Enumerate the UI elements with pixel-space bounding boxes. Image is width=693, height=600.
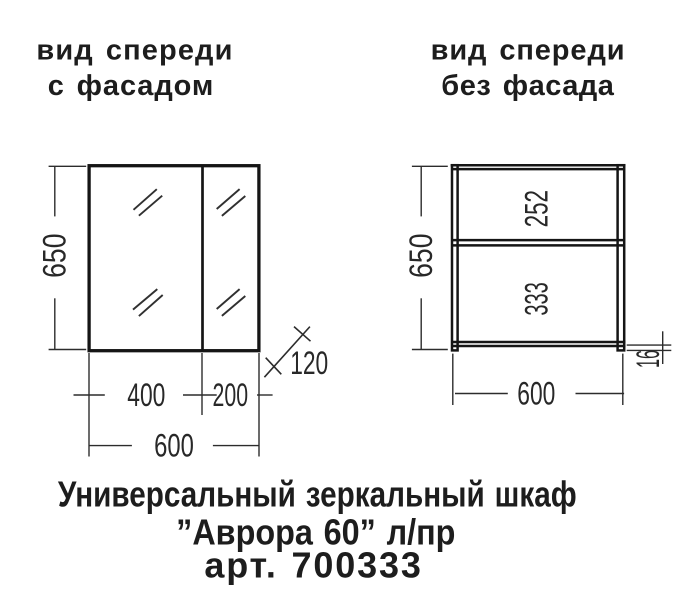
svg-text:без фасада: без фасада <box>441 70 614 102</box>
svg-text:120: 120 <box>290 345 328 381</box>
svg-text:16: 16 <box>630 350 666 368</box>
svg-text:333: 333 <box>519 282 555 315</box>
svg-text:650: 650 <box>36 234 72 278</box>
svg-text:Универсальный зеркальный шка: Универсальный зеркальный шкаф <box>58 474 577 515</box>
svg-text:с фасадом: с фасадом <box>48 70 214 102</box>
svg-text:252: 252 <box>519 190 555 227</box>
svg-text:400: 400 <box>127 377 165 413</box>
svg-text:200: 200 <box>213 377 249 413</box>
svg-text:600: 600 <box>154 427 194 463</box>
svg-text:600: 600 <box>517 376 555 412</box>
svg-text:арт. 700333: арт. 700333 <box>204 544 421 585</box>
svg-text:вид спереди: вид спереди <box>431 35 625 67</box>
svg-text:650: 650 <box>403 234 439 278</box>
svg-text:вид спереди: вид спереди <box>36 34 232 66</box>
